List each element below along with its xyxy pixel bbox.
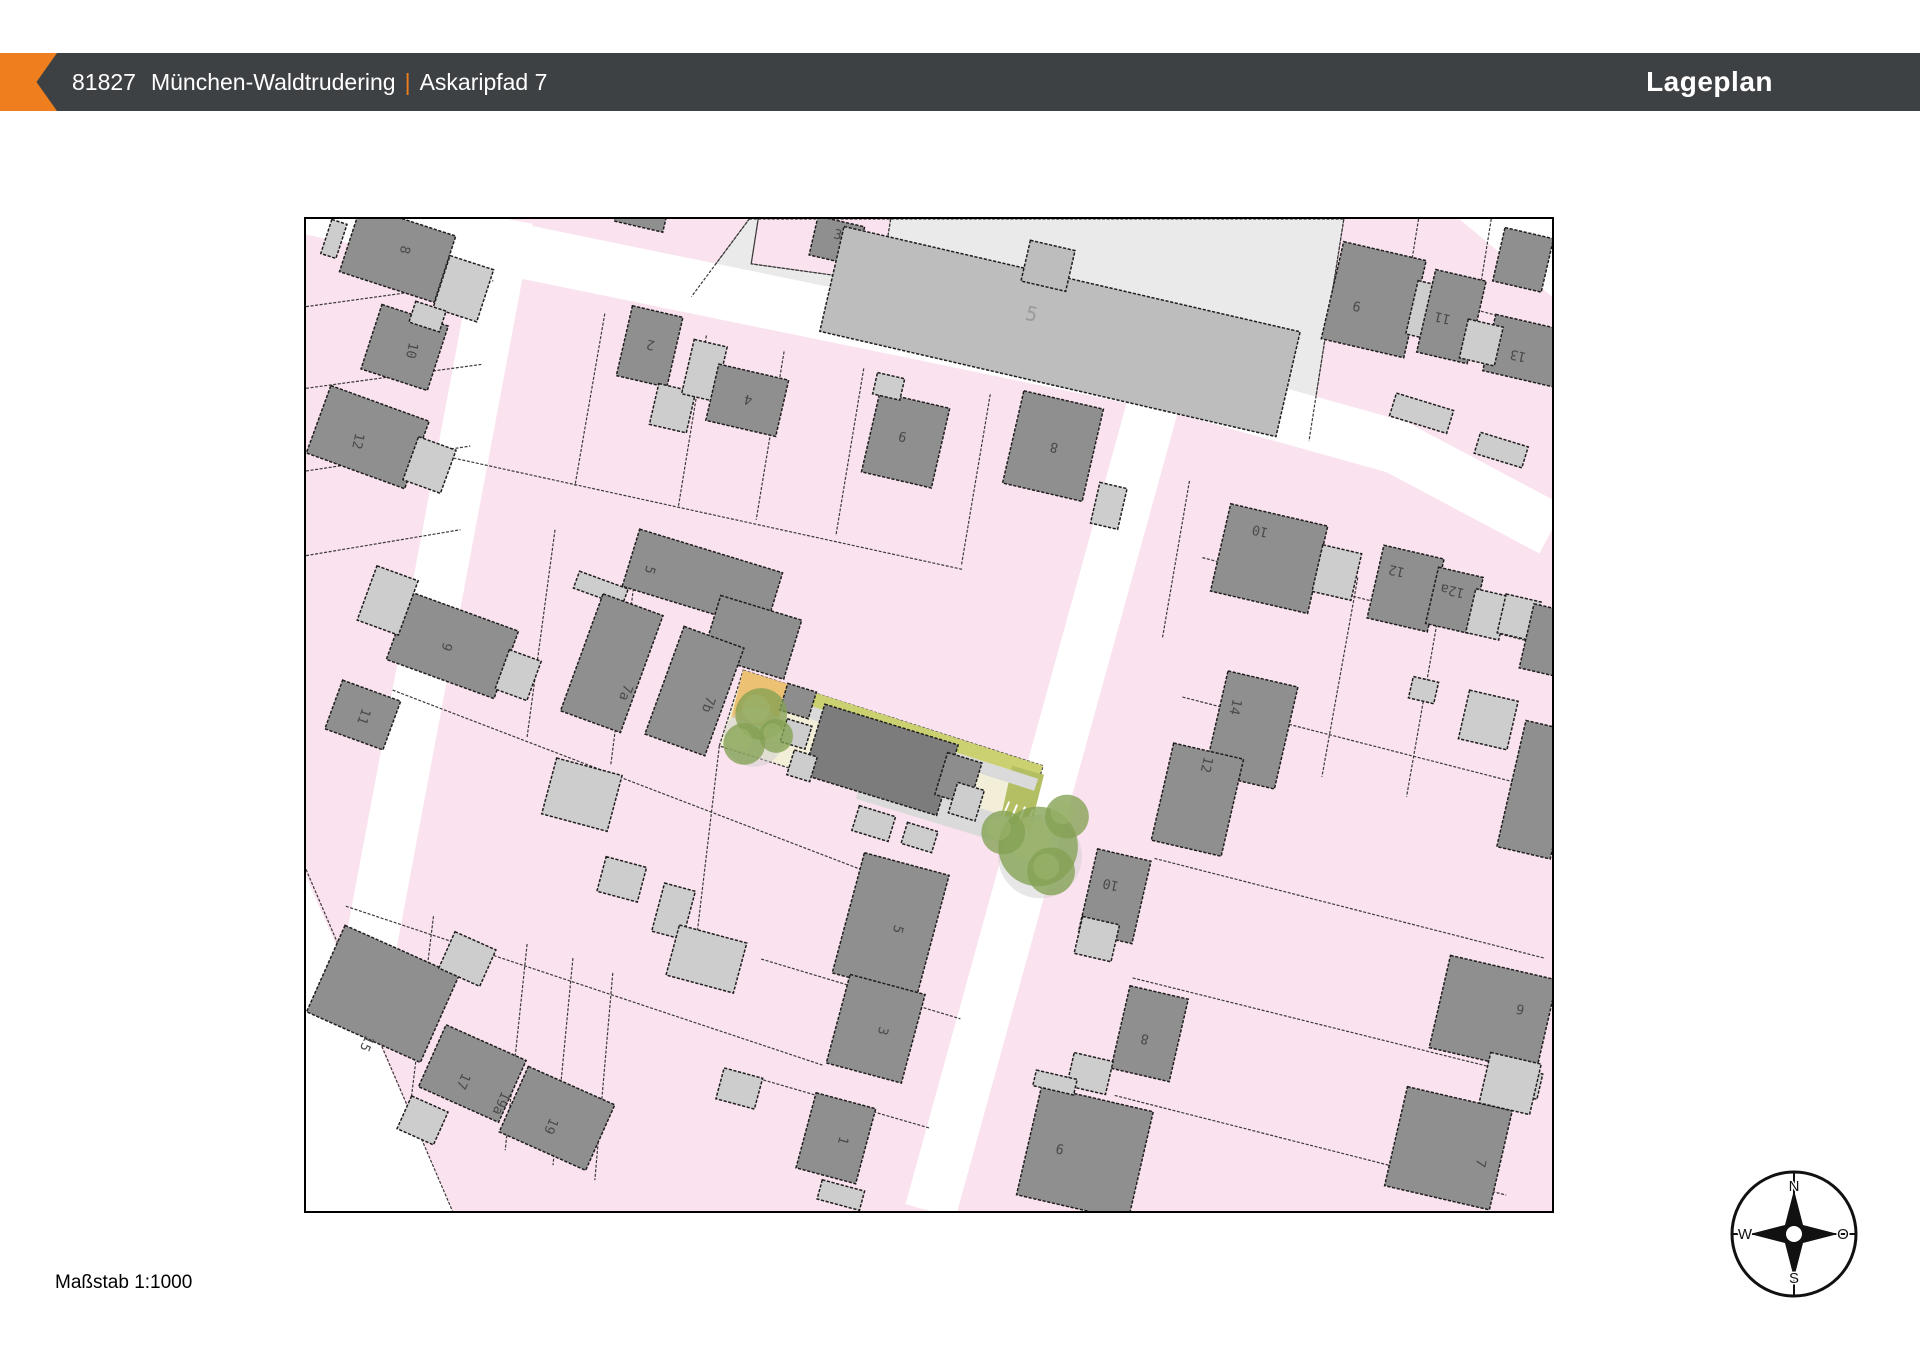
site-plan-map: 81012243989111357a7b911151719a1953110121… [306, 219, 1552, 1211]
page-title: Lageplan [1646, 53, 1773, 111]
compass-label-west: W [1738, 1226, 1753, 1243]
address-separator: | [405, 69, 411, 96]
header-bar: 81827 München-Waldtrudering | Askaripfad… [0, 53, 1920, 111]
scale-label: Maßstab 1:1000 [55, 1272, 192, 1294]
compass-label-south: S [1789, 1270, 1799, 1287]
city-name: München-Waldtrudering [151, 69, 396, 96]
header-accent-chevron [0, 53, 57, 111]
lageplan-page: 81827 München-Waldtrudering | Askaripfad… [0, 0, 1920, 1357]
compass-label-north: N [1789, 1178, 1800, 1195]
compass-rose: N O S W [1724, 1164, 1864, 1304]
compass-label-east: O [1837, 1226, 1849, 1243]
site-plan-frame: 81012243989111357a7b911151719a1953110121… [304, 217, 1554, 1213]
compass-hub [1786, 1226, 1802, 1242]
postal-code: 81827 [72, 69, 136, 96]
header-address: 81827 München-Waldtrudering | Askaripfad… [72, 53, 547, 111]
street-address: Askaripfad 7 [420, 69, 548, 96]
